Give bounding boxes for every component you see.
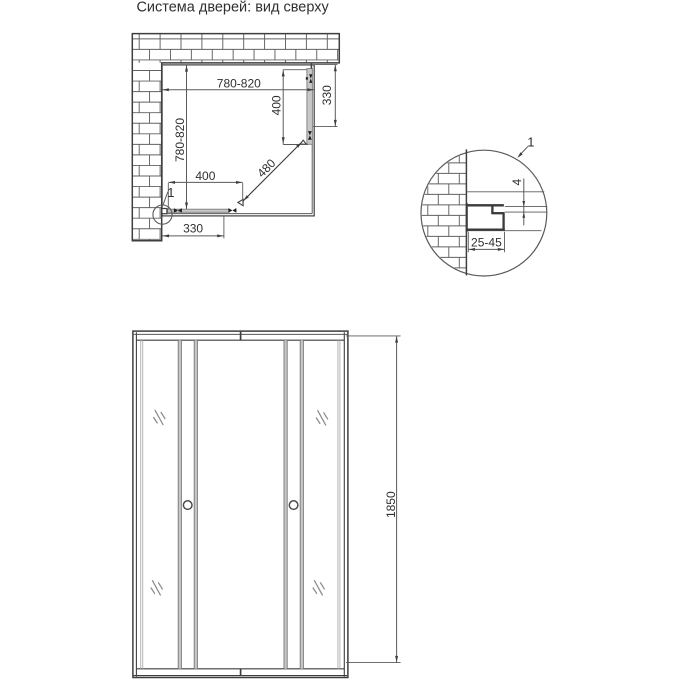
svg-text:780-820: 780-820: [217, 76, 261, 90]
svg-text:780-820: 780-820: [173, 118, 187, 162]
svg-text:1: 1: [527, 135, 534, 150]
svg-text:330: 330: [183, 221, 203, 235]
svg-text:1850: 1850: [384, 491, 398, 518]
svg-text:330: 330: [320, 85, 334, 105]
svg-text:400: 400: [195, 169, 215, 183]
svg-text:1: 1: [167, 185, 174, 200]
svg-text:400: 400: [270, 95, 284, 115]
svg-text:25-45: 25-45: [471, 235, 502, 249]
svg-text:4: 4: [510, 179, 524, 186]
svg-text:Система дверей: вид сверху: Система дверей: вид сверху: [136, 0, 329, 16]
